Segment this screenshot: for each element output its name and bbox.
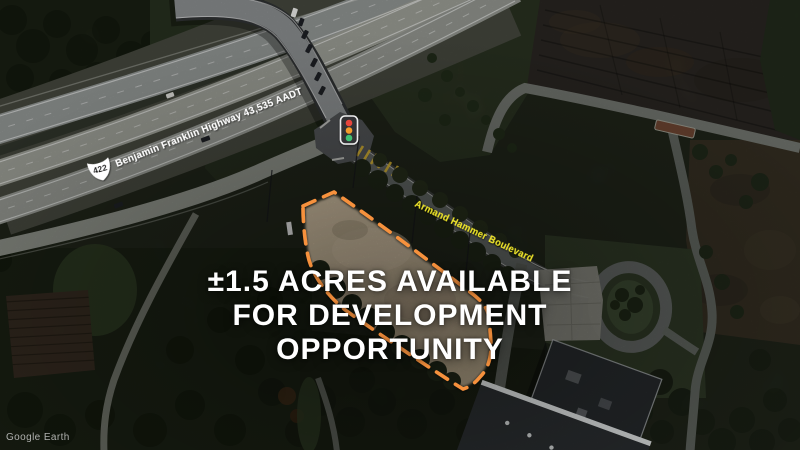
vignette-overlay: [0, 0, 800, 450]
traffic-light-icon: [341, 116, 358, 144]
traffic-light-green-lamp: [346, 135, 353, 142]
traffic-light-amber-lamp: [346, 127, 353, 134]
google-earth-watermark: Google Earth: [6, 432, 70, 443]
traffic-light-red-lamp: [346, 120, 353, 127]
satellite-base-map: 422 Benjamin Franklin Highway 43,535 AAD…: [0, 0, 800, 450]
aerial-marketing-image: 422 Benjamin Franklin Highway 43,535 AAD…: [0, 0, 800, 450]
